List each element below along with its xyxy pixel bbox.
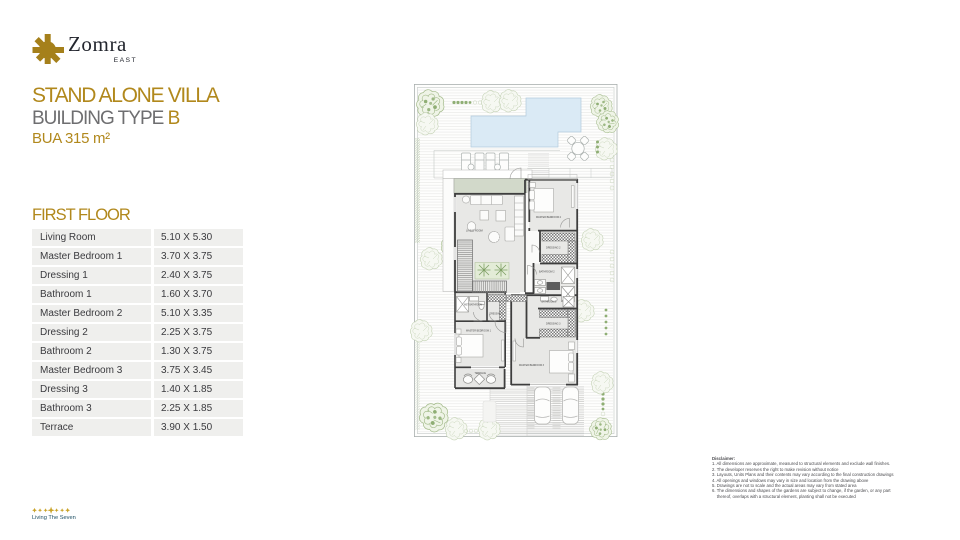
svg-text:LIVING ROOM: LIVING ROOM: [466, 230, 483, 233]
svg-text:DRESSING 2: DRESSING 2: [546, 246, 561, 249]
svg-text:BATHROOM 2: BATHROOM 2: [539, 270, 555, 273]
svg-text:TERRACE: TERRACE: [475, 372, 487, 375]
svg-text:MASTER BEDROOM 3: MASTER BEDROOM 3: [519, 364, 545, 367]
svg-text:DRESSING 1: DRESSING 1: [490, 313, 504, 315]
svg-text:DRESSING 3: DRESSING 3: [546, 322, 561, 325]
svg-text:MASTER BEDROOM 2: MASTER BEDROOM 2: [536, 216, 562, 219]
svg-text:MASTER BEDROOM 1: MASTER BEDROOM 1: [466, 329, 492, 332]
